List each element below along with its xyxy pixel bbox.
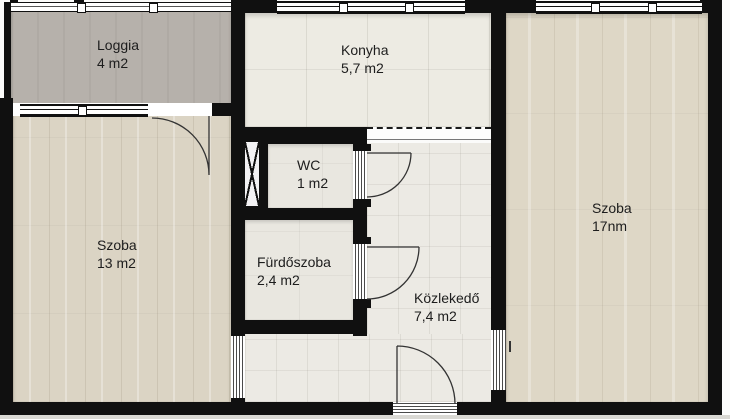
door-szoba-right bbox=[491, 330, 506, 390]
wall-right bbox=[708, 0, 722, 415]
floor-plan: Loggia 4 m2 Konyha 5,7 m2 WC 1 m2 Szoba … bbox=[0, 0, 730, 419]
label-konyha: Konyha 5,7 m2 bbox=[341, 41, 388, 77]
window-mullion bbox=[405, 3, 414, 13]
entry-door-threshold bbox=[393, 402, 457, 415]
label-szoba-left: Szoba 13 m2 bbox=[97, 236, 137, 272]
door-furdoszoba bbox=[353, 244, 367, 299]
label-konyha-name: Konyha bbox=[341, 41, 388, 59]
door-mark-szoba-right bbox=[509, 341, 511, 352]
label-furdoszoba-area: 2,4 m2 bbox=[257, 271, 331, 289]
wall-top-segment-b bbox=[465, 0, 536, 13]
label-loggia: Loggia 4 m2 bbox=[97, 36, 139, 72]
label-wc: WC 1 m2 bbox=[297, 156, 328, 192]
loggia-railing bbox=[11, 2, 231, 12]
wall-wc-furdoszoba-divider bbox=[231, 208, 367, 220]
ventilation-shaft-icon bbox=[243, 140, 261, 208]
label-konyha-area: 5,7 m2 bbox=[341, 59, 388, 77]
wall-shaft-right bbox=[260, 140, 268, 208]
door-szoba-left bbox=[231, 336, 245, 398]
wall-bottom-right-segment bbox=[457, 402, 722, 415]
label-kozlekedo-name: Közlekedő bbox=[414, 289, 479, 307]
wall-loggia-left bbox=[4, 2, 11, 102]
label-szoba-right-name: Szoba bbox=[592, 199, 632, 217]
label-szoba-right: Szoba 17nm bbox=[592, 199, 632, 235]
window-mullion bbox=[78, 106, 87, 116]
wall-hinge-block-wc-bottom bbox=[353, 199, 371, 207]
railing-mullion bbox=[77, 3, 86, 13]
window-mullion bbox=[648, 3, 657, 13]
opening-konyha-kozlekedo bbox=[367, 127, 491, 140]
label-szoba-right-area: 17nm bbox=[592, 217, 632, 235]
label-kozlekedo-area: 7,4 m2 bbox=[414, 307, 479, 325]
wall-hinge-block-wc-top bbox=[353, 144, 371, 151]
wall-hinge-block-bath-top bbox=[353, 237, 371, 244]
wall-left bbox=[0, 98, 13, 415]
label-kozlekedo: Közlekedő 7,4 m2 bbox=[414, 289, 479, 325]
label-szoba-left-name: Szoba bbox=[97, 236, 137, 254]
wall-furdoszoba-bottom bbox=[231, 320, 367, 334]
label-furdoszoba: Fürdőszoba 2,4 m2 bbox=[257, 253, 331, 289]
wall-hinge-block-bath-bottom bbox=[353, 299, 371, 308]
ground-strip bbox=[0, 415, 730, 419]
label-szoba-left-area: 13 m2 bbox=[97, 254, 137, 272]
window-szoba-right bbox=[536, 1, 702, 14]
label-furdoszoba-name: Fürdőszoba bbox=[257, 253, 331, 271]
wall-sill-stub bbox=[212, 103, 231, 116]
window-mullion bbox=[591, 3, 600, 13]
wall-bottom-left-segment bbox=[0, 402, 393, 415]
label-loggia-area: 4 m2 bbox=[97, 54, 139, 72]
window-loggia-szoba bbox=[20, 104, 148, 117]
label-loggia-name: Loggia bbox=[97, 36, 139, 54]
window-konyha bbox=[277, 1, 465, 14]
railing-mullion bbox=[149, 3, 158, 13]
label-wc-name: WC bbox=[297, 156, 328, 174]
window-mullion bbox=[339, 3, 348, 13]
label-wc-area: 1 m2 bbox=[297, 174, 328, 192]
room-kozlekedo-floor-horizontal bbox=[245, 334, 491, 402]
door-wc bbox=[353, 151, 367, 199]
